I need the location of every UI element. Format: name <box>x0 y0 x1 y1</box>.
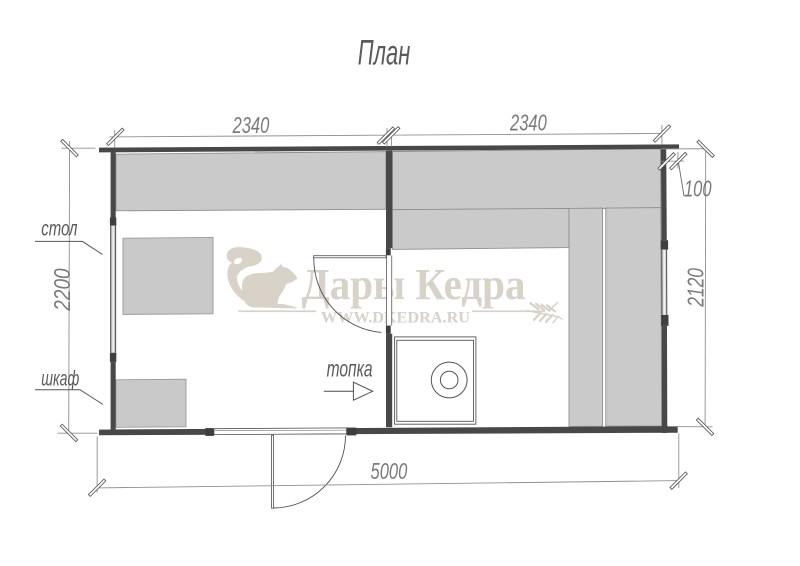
svg-text:2340: 2340 <box>509 109 547 135</box>
svg-text:Дары Кедра: Дары Кедра <box>302 260 526 309</box>
svg-text:План: План <box>358 34 411 73</box>
svg-text:топка: топка <box>327 355 373 381</box>
svg-text:2120: 2120 <box>682 268 708 308</box>
svg-text:100: 100 <box>684 176 712 202</box>
svg-text:2340: 2340 <box>232 112 270 138</box>
svg-text:шкаф: шкаф <box>41 367 79 390</box>
svg-text:5000: 5000 <box>371 458 408 484</box>
svg-text:стол: стол <box>41 218 77 241</box>
svg-text:2200: 2200 <box>49 268 75 311</box>
